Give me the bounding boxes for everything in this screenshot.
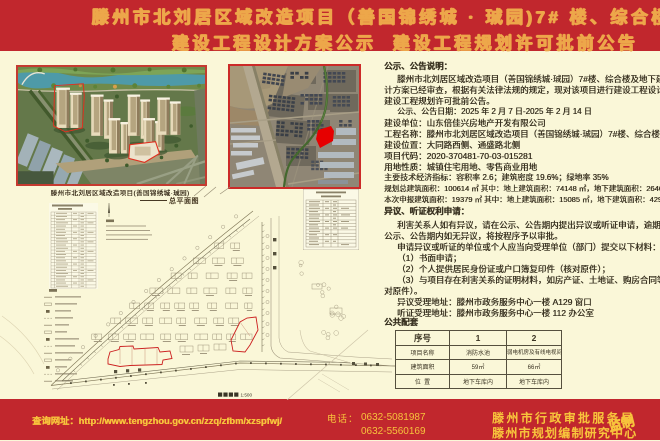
svg-text:1:500: 1:500: [241, 393, 253, 398]
